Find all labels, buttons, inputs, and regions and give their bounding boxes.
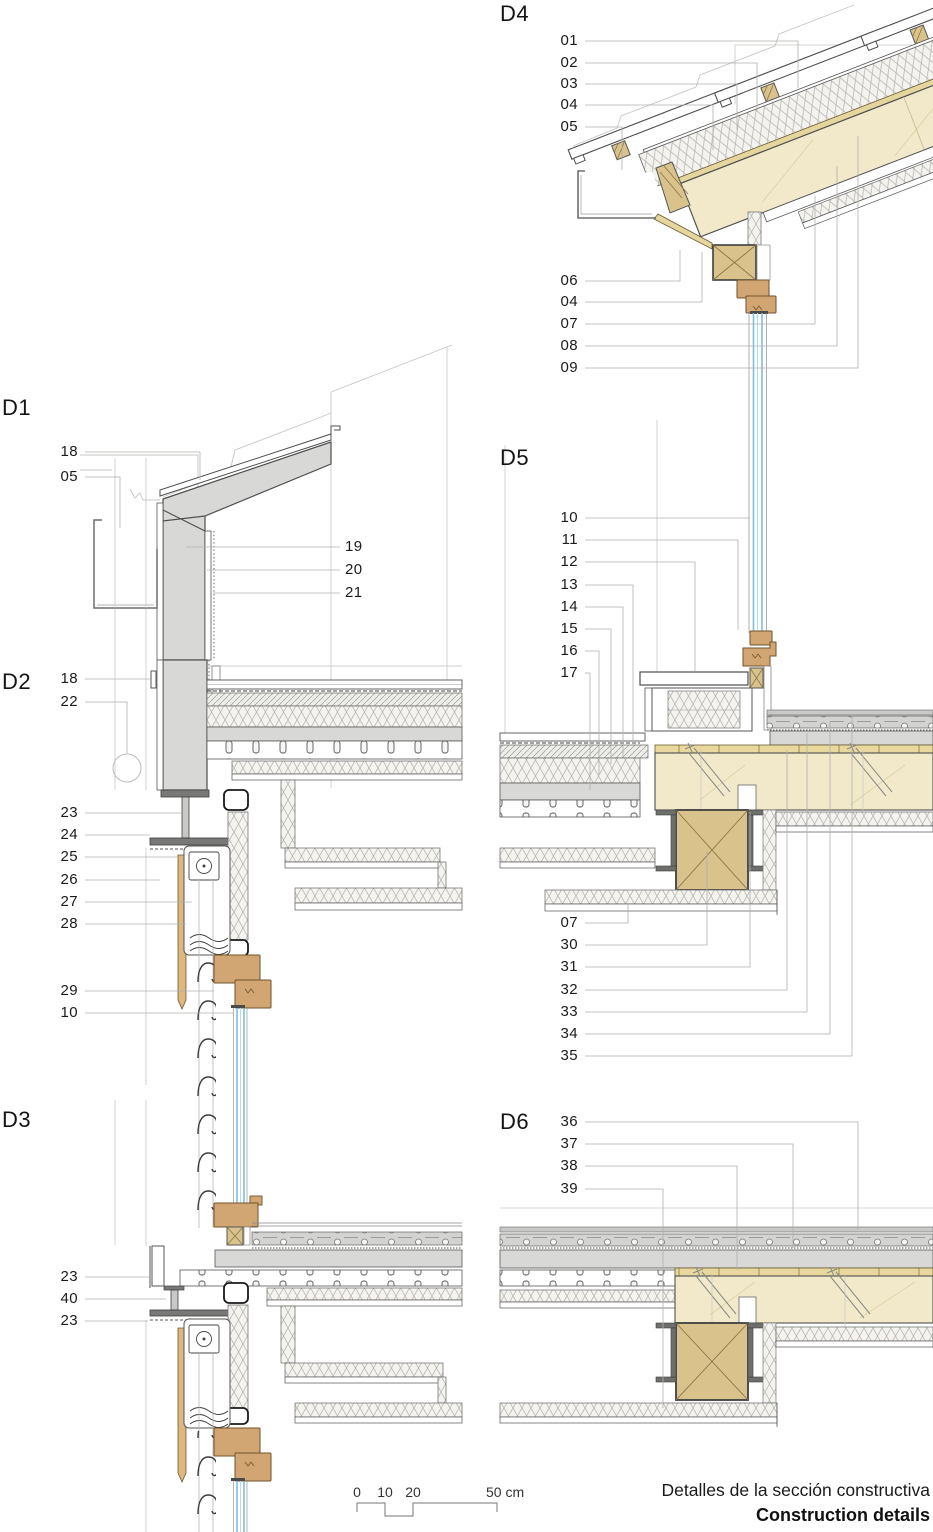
callout-d5-17: 17 bbox=[542, 665, 578, 681]
callout-d1-21: 21 bbox=[345, 585, 385, 601]
callout-d5-13: 13 bbox=[542, 577, 578, 593]
detail-label-d6: D6 bbox=[500, 1110, 529, 1134]
callout-d5-16: 16 bbox=[542, 643, 578, 659]
detail-label-d4: D4 bbox=[500, 2, 529, 26]
detail-d2-drawing bbox=[85, 609, 462, 1228]
callout-d4-04: 04 bbox=[542, 97, 578, 113]
drawing-canvas bbox=[0, 0, 933, 1532]
scale-end-label: 50 cm bbox=[486, 1485, 524, 1500]
callout-d5-07: 07 bbox=[542, 915, 578, 931]
callout-d5-15: 15 bbox=[542, 621, 578, 637]
callout-d2-26: 26 bbox=[42, 872, 78, 888]
callout-d5-30: 30 bbox=[542, 937, 578, 953]
sheet-title-english: Construction details bbox=[756, 1505, 930, 1526]
callout-d5-35: 35 bbox=[542, 1048, 578, 1064]
scale-tick-20: 20 bbox=[404, 1485, 422, 1500]
callout-d5-11: 11 bbox=[542, 532, 578, 548]
callout-d1-05: 05 bbox=[42, 469, 78, 485]
callout-d4-07: 07 bbox=[542, 316, 578, 332]
callout-d3-23b: 23 bbox=[42, 1313, 78, 1329]
callout-d5-14: 14 bbox=[542, 599, 578, 615]
callout-d2-27: 27 bbox=[42, 894, 78, 910]
callout-d6-39: 39 bbox=[542, 1181, 578, 1197]
callout-d2-18: 18 bbox=[42, 671, 78, 687]
callout-d5-32: 32 bbox=[542, 982, 578, 998]
callout-d4-06: 06 bbox=[542, 273, 578, 289]
scale-bar-graphic bbox=[357, 1503, 497, 1516]
scale-tick-0: 0 bbox=[350, 1485, 364, 1500]
callout-d6-37: 37 bbox=[542, 1136, 578, 1152]
callout-d2-10: 10 bbox=[42, 1005, 78, 1021]
callout-d4-02: 02 bbox=[542, 55, 578, 71]
construction-details-sheet: D4 D1 D2 D3 D5 D6 01 02 03 04 05 06 04 0… bbox=[0, 0, 933, 1532]
callout-d4-01: 01 bbox=[542, 33, 578, 49]
callout-d5-33: 33 bbox=[542, 1004, 578, 1020]
callout-d1-19: 19 bbox=[345, 539, 385, 555]
callout-d2-22: 22 bbox=[42, 694, 78, 710]
callout-d4-08: 08 bbox=[542, 338, 578, 354]
detail-label-d5: D5 bbox=[500, 446, 529, 470]
callout-d3-23a: 23 bbox=[42, 1269, 78, 1285]
detail-label-d2: D2 bbox=[2, 670, 31, 694]
callout-d1-20: 20 bbox=[345, 562, 385, 578]
callout-d2-25: 25 bbox=[42, 849, 78, 865]
detail-label-d1: D1 bbox=[2, 396, 31, 420]
callout-d3-40: 40 bbox=[42, 1291, 78, 1307]
callout-d6-38: 38 bbox=[542, 1158, 578, 1174]
callout-d6-36: 36 bbox=[542, 1114, 578, 1130]
detail-d3-drawing bbox=[85, 1100, 462, 1532]
detail-label-d3: D3 bbox=[2, 1108, 31, 1132]
callout-d4-03: 03 bbox=[542, 76, 578, 92]
callout-d4-05: 05 bbox=[542, 119, 578, 135]
callout-d4-09: 09 bbox=[542, 360, 578, 376]
callout-d2-28: 28 bbox=[42, 916, 78, 932]
callout-d2-23: 23 bbox=[42, 805, 78, 821]
scale-tick-10: 10 bbox=[376, 1485, 394, 1500]
callout-d4-04b: 04 bbox=[542, 294, 578, 310]
detail-d4-drawing bbox=[560, 0, 933, 445]
callout-d5-10: 10 bbox=[542, 510, 578, 526]
callout-d5-34: 34 bbox=[542, 1026, 578, 1042]
callout-d1-18: 18 bbox=[42, 444, 78, 460]
callout-d2-24: 24 bbox=[42, 827, 78, 843]
sheet-title-spanish: Detalles de la sección constructiva bbox=[662, 1480, 930, 1501]
callout-d5-31: 31 bbox=[542, 959, 578, 975]
callout-d2-29: 29 bbox=[42, 983, 78, 999]
callout-d5-12: 12 bbox=[542, 554, 578, 570]
